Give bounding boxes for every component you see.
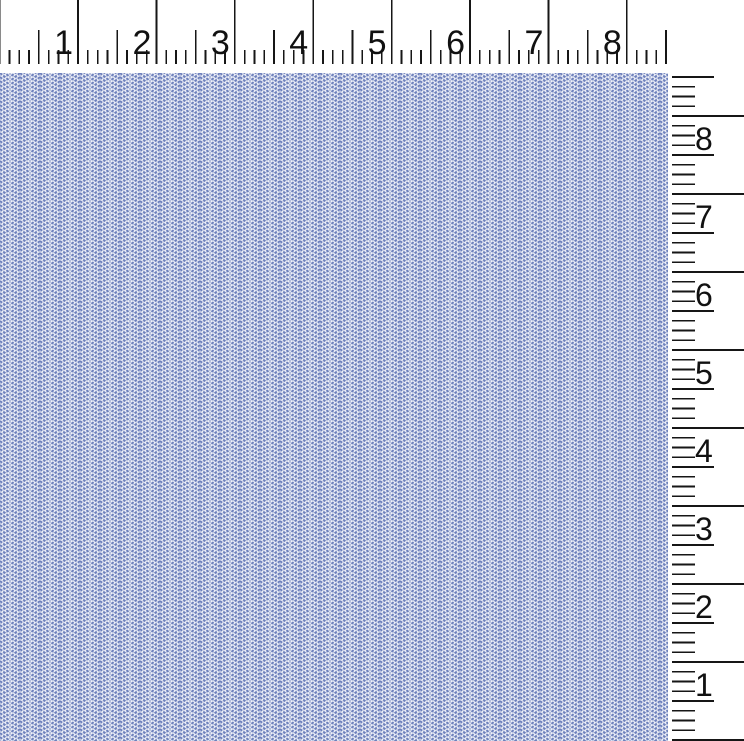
ruler-number: 2: [132, 26, 151, 60]
ruler-number: 4: [695, 435, 713, 467]
ruler-vertical: 87654321: [668, 0, 744, 741]
herringbone-texture: [0, 73, 668, 741]
ruler-number: 1: [54, 26, 73, 60]
fabric-swatch-page: 12345678 87654321: [0, 0, 744, 741]
ruler-number: 7: [695, 201, 713, 233]
ruler-number: 7: [524, 26, 543, 60]
ruler-number: 6: [695, 279, 713, 311]
ruler-horizontal: 12345678: [0, 0, 668, 73]
fabric-area: [0, 73, 668, 741]
ruler-number: 4: [289, 26, 308, 60]
ruler-number: 3: [695, 513, 713, 545]
ruler-number: 2: [695, 591, 713, 623]
ruler-number: 8: [603, 26, 622, 60]
ruler-number: 3: [211, 26, 230, 60]
ruler-number: 5: [695, 357, 713, 389]
ruler-horizontal-ticks: [0, 0, 668, 73]
fabric-swatch: [0, 73, 668, 741]
ruler-number: 6: [446, 26, 465, 60]
ruler-number: 8: [695, 123, 713, 155]
ruler-number: 5: [368, 26, 387, 60]
ruler-number: 1: [695, 669, 713, 701]
